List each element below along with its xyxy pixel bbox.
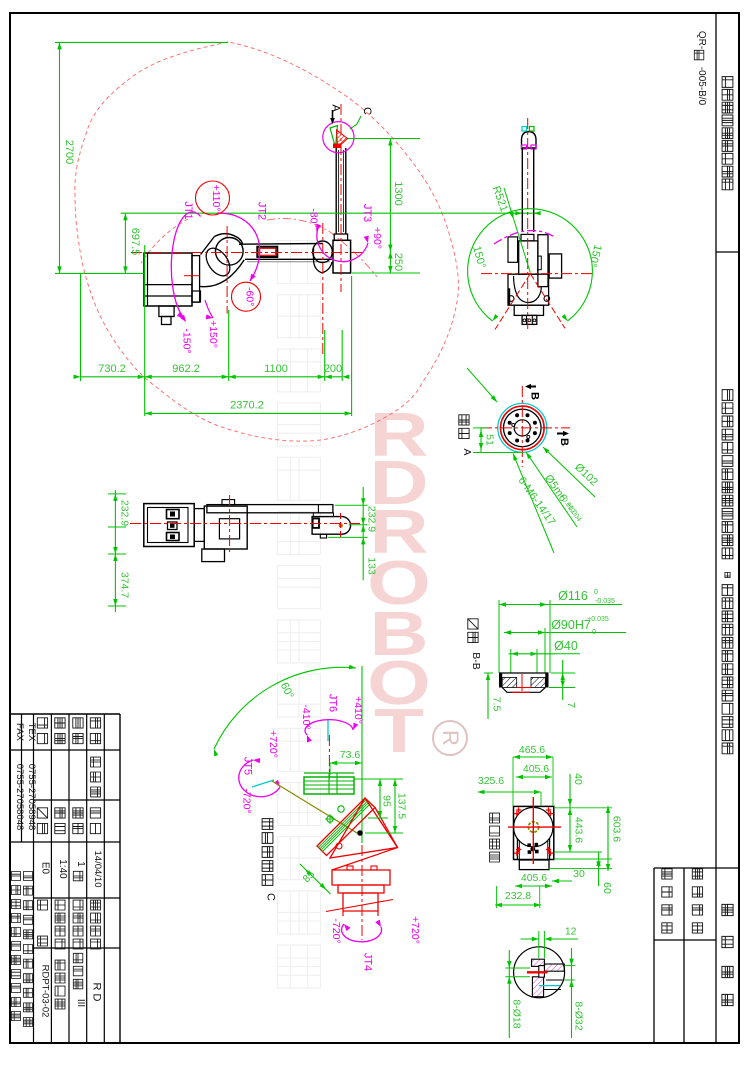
svg-text:1300: 1300	[392, 181, 404, 205]
svg-text:232.9: 232.9	[119, 500, 131, 526]
svg-text:250: 250	[392, 253, 404, 271]
svg-text:2370.2: 2370.2	[230, 400, 264, 412]
svg-text:133: 133	[366, 557, 378, 575]
svg-text:7.5: 7.5	[491, 697, 503, 712]
svg-text:0755-27058048: 0755-27058048	[14, 764, 25, 831]
svg-text:JT2: JT2	[256, 202, 268, 220]
svg-text:465.6: 465.6	[519, 744, 545, 756]
svg-text:697.5: 697.5	[129, 228, 141, 256]
svg-text:-005-B/0: -005-B/0	[696, 67, 707, 106]
svg-text:-720°: -720°	[330, 918, 342, 943]
svg-text:73.6: 73.6	[340, 749, 361, 761]
svg-text:-0.035: -0.035	[595, 598, 615, 605]
svg-text:QR-: QR-	[696, 31, 707, 49]
svg-text:405.6: 405.6	[523, 763, 549, 775]
svg-text:-410°: -410°	[300, 704, 312, 729]
svg-text:2700: 2700	[63, 140, 75, 164]
svg-text:60: 60	[601, 882, 613, 894]
svg-text:+90°: +90°	[371, 227, 383, 249]
svg-text:B: B	[529, 392, 541, 400]
svg-text:405.6: 405.6	[521, 872, 547, 884]
svg-text:8-Ø18: 8-Ø18	[510, 999, 522, 1028]
svg-text:FAX: FAX	[14, 723, 25, 742]
svg-text:51: 51	[484, 434, 496, 446]
svg-text:200: 200	[324, 363, 342, 375]
svg-text:+720°: +720°	[409, 916, 421, 944]
svg-text:Ø40: Ø40	[554, 639, 578, 653]
svg-text:Ø90H7: Ø90H7	[551, 618, 591, 632]
svg-text:C: C	[361, 107, 373, 115]
svg-text:B-B: B-B	[470, 652, 482, 670]
svg-text:374.7: 374.7	[119, 572, 131, 598]
svg-text:T: T	[374, 696, 424, 765]
svg-text:325.6: 325.6	[478, 775, 504, 787]
svg-text:JT3: JT3	[361, 204, 373, 222]
svg-text:1:40: 1:40	[57, 859, 68, 879]
svg-text:C: C	[265, 893, 277, 901]
svg-text:232.9: 232.9	[366, 506, 378, 532]
svg-text:+720°: +720°	[267, 730, 279, 758]
svg-text:+150°: +150°	[207, 320, 219, 348]
svg-text:0755-27058948: 0755-27058948	[26, 764, 37, 831]
svg-text:Ø116: Ø116	[558, 589, 588, 603]
svg-text:1100: 1100	[264, 363, 288, 375]
svg-text:30: 30	[573, 868, 585, 880]
svg-text:0: 0	[594, 589, 598, 596]
svg-text:E0: E0	[40, 862, 51, 875]
svg-text:7: 7	[565, 702, 577, 708]
svg-text:TEX: TEX	[26, 723, 37, 742]
svg-text:137.5: 137.5	[396, 793, 408, 819]
svg-text:R D: R D	[91, 983, 103, 1002]
svg-text:R: R	[438, 730, 463, 746]
svg-text:JT1: JT1	[182, 201, 194, 219]
svg-text:962.2: 962.2	[172, 363, 200, 375]
svg-text:JT6: JT6	[327, 694, 339, 712]
svg-text:-60°: -60°	[244, 287, 256, 306]
svg-text:12: 12	[565, 926, 577, 938]
svg-text:95: 95	[381, 795, 393, 807]
svg-text:14/04/10: 14/04/10	[92, 851, 103, 888]
svg-text:A: A	[461, 448, 473, 455]
svg-text:B: B	[558, 438, 570, 446]
svg-text:RDPT-03-02: RDPT-03-02	[40, 965, 51, 1018]
svg-text:+0.035: +0.035	[587, 616, 609, 623]
svg-text:III: III	[75, 999, 86, 1007]
svg-text:A: A	[330, 104, 342, 112]
svg-text:JT4: JT4	[362, 953, 374, 971]
svg-text:+110°: +110°	[210, 184, 222, 211]
svg-text:1: 1	[75, 861, 86, 867]
svg-text:603.6: 603.6	[611, 816, 623, 842]
svg-text:443.6: 443.6	[573, 817, 585, 843]
svg-text:730.2: 730.2	[98, 363, 126, 375]
svg-text:+410°: +410°	[352, 696, 364, 724]
svg-text:40: 40	[572, 773, 584, 785]
svg-text:8-Ø32: 8-Ø32	[573, 1001, 585, 1030]
svg-text:232.8: 232.8	[505, 890, 531, 902]
svg-text:-150°: -150°	[181, 328, 193, 353]
